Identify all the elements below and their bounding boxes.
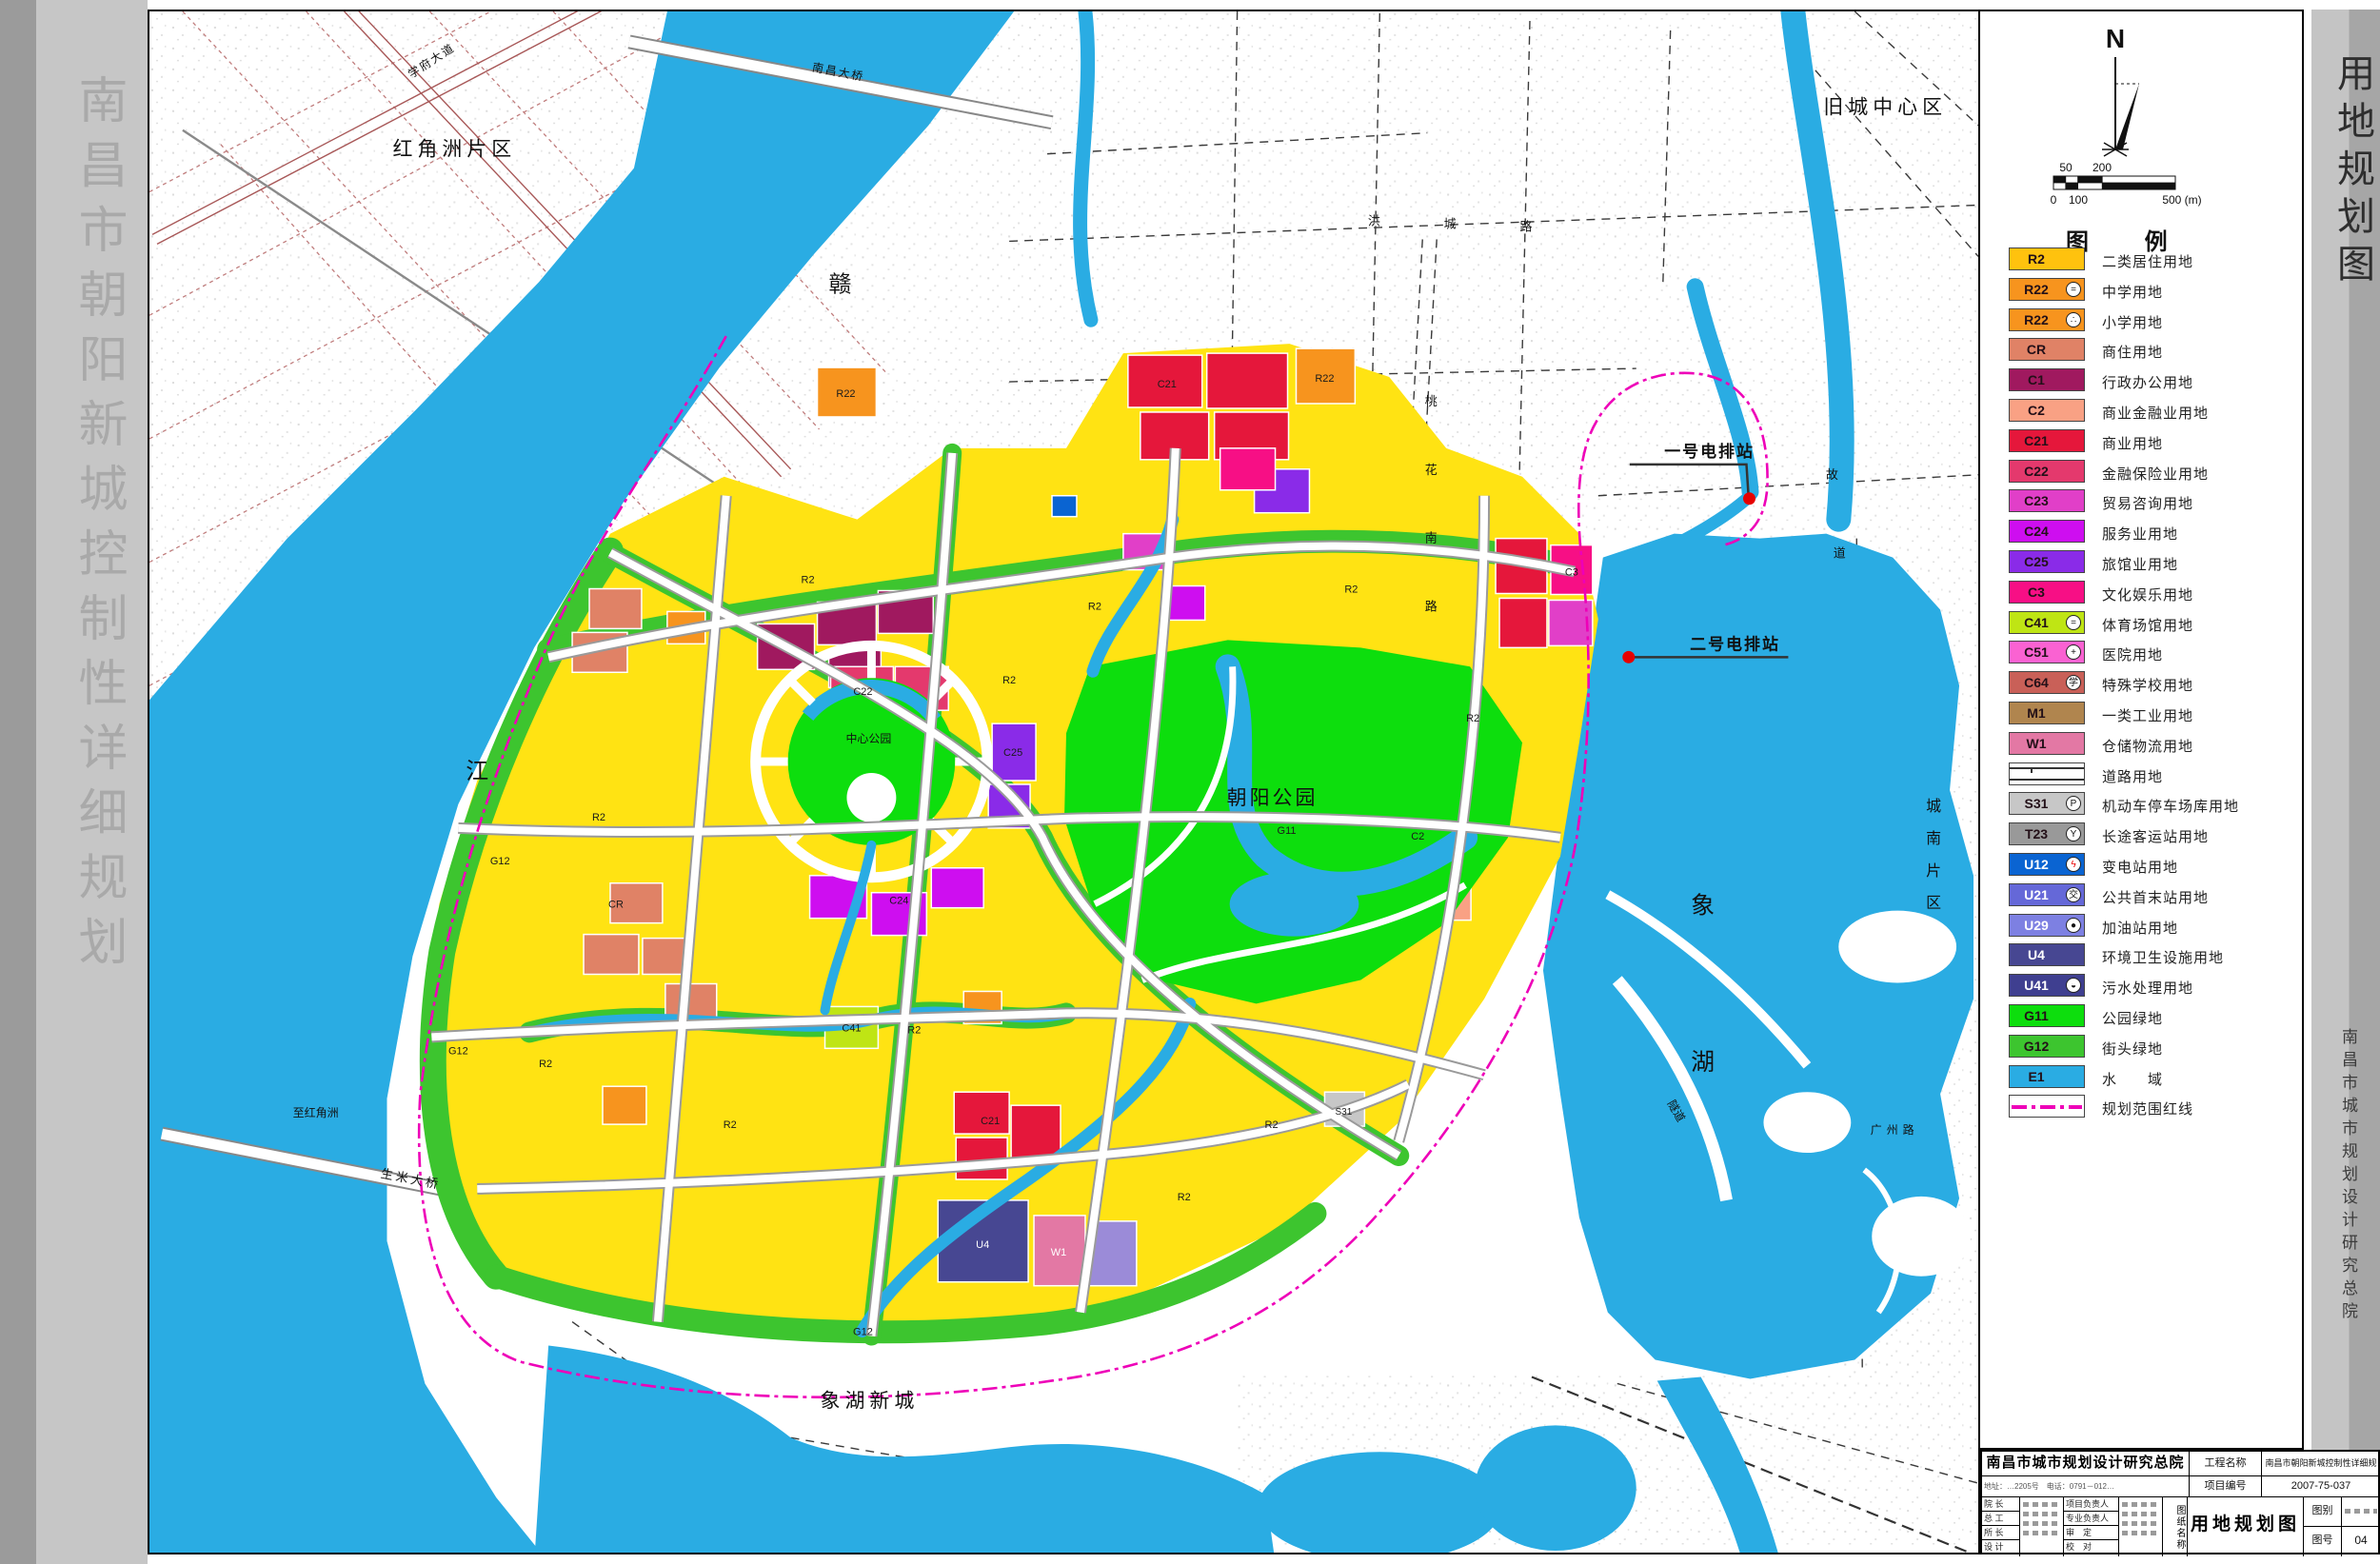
map-canvas: 红角洲片区 旧城中心区 象湖新城 朝阳公园 中心公园 赣 江 象 湖 城 南 片… — [148, 10, 1980, 1554]
legend-code: C1 — [2010, 372, 2063, 387]
role-label: 校 对 — [2064, 1540, 2118, 1554]
label-gan: 赣 — [829, 271, 852, 297]
parcel-code: G12 — [490, 856, 510, 867]
C51-swatch: C51+ — [2009, 641, 2085, 663]
planning-map-sheet: 南昌市朝阳新城控制性详细规划 — [0, 0, 2380, 1564]
land-use-map: 红角洲片区 旧城中心区 象湖新城 朝阳公园 中心公园 赣 江 象 湖 城 南 片… — [149, 11, 1978, 1553]
project-name-value: 南昌市朝阳新城控制性详细规划 — [2262, 1452, 2380, 1476]
legend-label: 商业金融业用地 — [2102, 403, 2209, 423]
legend-item-C64: C64学特殊学校用地 — [1980, 671, 2302, 696]
legend-code: C21 — [2010, 433, 2063, 448]
parcel-code: R2 — [1178, 1192, 1191, 1203]
legend-label: 水 域 — [2102, 1069, 2163, 1089]
role-label: 设 计 — [1982, 1540, 2019, 1554]
R22-swatch: R22∴ — [2009, 308, 2085, 331]
legend-code: E1 — [2010, 1069, 2063, 1084]
roles-column-2: 项目负责人 专业负责人 审 定 校 对 — [2064, 1497, 2119, 1556]
pump1-dot — [1743, 492, 1755, 505]
legend-code: C22 — [2010, 464, 2063, 479]
sheet-number-label: 图号 — [2304, 1527, 2342, 1556]
C23-swatch: C23 — [2009, 489, 2085, 512]
parcel-code: G12 — [448, 1045, 468, 1057]
parcel-code: R2 — [724, 1119, 737, 1131]
legend-code: C3 — [2010, 584, 2063, 600]
xiang-lake — [1543, 534, 1973, 1379]
parcel-code: R2 — [1265, 1119, 1279, 1131]
parcel-code: C22 — [853, 686, 872, 698]
parcel-code: G11 — [1278, 825, 1297, 837]
legend-label: 规划范围红线 — [2102, 1099, 2193, 1119]
project-name-label: 工程名称 — [2190, 1452, 2262, 1476]
legend-code: CR — [2010, 342, 2063, 357]
C22-swatch: C22 — [2009, 460, 2085, 483]
legend-symbol-icon: + — [2066, 644, 2081, 660]
legend-label: 一类工业用地 — [2102, 705, 2193, 725]
legend-label: 特殊学校用地 — [2102, 675, 2193, 695]
legend-label: 机动车停车场库用地 — [2102, 796, 2239, 816]
U4-swatch: U4 — [2009, 943, 2085, 966]
label-zhi-hongjiaozhou: 至红角洲 — [293, 1105, 339, 1119]
legend-label: 道路用地 — [2102, 766, 2163, 786]
legend-label: 加油站用地 — [2102, 918, 2178, 938]
legend-symbol-icon: 学 — [2066, 675, 2081, 690]
scale-bar: 50 200 0 100 500 (m) — [2051, 161, 2202, 207]
legend-label: 商住用地 — [2102, 342, 2163, 362]
names-column-1 — [2020, 1497, 2064, 1556]
parcel-code: R2 — [802, 575, 815, 586]
pump2-dot — [1622, 651, 1635, 663]
label-taohua-3: 南 — [1425, 531, 1438, 545]
parcel-code: R2 — [1088, 601, 1101, 612]
C2-swatch: C2 — [2009, 399, 2085, 422]
parcel-code: R2 — [539, 1059, 552, 1070]
legend-label: 服务业用地 — [2102, 524, 2178, 544]
legend-item-C21: C21商业用地 — [1980, 429, 2302, 454]
legend-item-boundary: 规划范围红线 — [1980, 1095, 2302, 1119]
parcel-code: CR — [608, 900, 624, 911]
role-label: 所 长 — [1982, 1526, 2019, 1540]
legend-code: C64 — [2010, 675, 2063, 690]
parcel-code: C25 — [1003, 747, 1022, 759]
C24-swatch: C24 — [2009, 520, 2085, 543]
C3-swatch: C3 — [2009, 581, 2085, 604]
parcel-code: U4 — [976, 1239, 989, 1251]
legend-code: R2 — [2010, 251, 2063, 267]
S31-swatch: S31P — [2009, 792, 2085, 815]
legend-code: W1 — [2010, 736, 2063, 751]
C25-swatch: C25 — [2009, 550, 2085, 573]
legend-item-C41: C41=体育场馆用地 — [1980, 611, 2302, 636]
legend-item-C22: C22金融保险业用地 — [1980, 460, 2302, 485]
label-hongcheng-1: 洪 — [1368, 213, 1380, 228]
legend-label: 变电站用地 — [2102, 857, 2178, 877]
legend-item-CR: CR商住用地 — [1980, 338, 2302, 363]
plan-title-vertical: 南昌市朝阳新城控制性详细规划 — [63, 74, 134, 980]
label-guangzhou-road: 广州路 — [1871, 1122, 1919, 1137]
parcel-code: C21 — [981, 1116, 1000, 1127]
legend-symbol-icon: ◒ — [2066, 978, 2081, 993]
sheet-type-label: 图别 — [2304, 1497, 2342, 1527]
legend-item-U12: U12ϟ变电站用地 — [1980, 853, 2302, 878]
parcel-code: R2 — [907, 1024, 921, 1036]
legend-label: 污水处理用地 — [2102, 978, 2193, 998]
legend-code: R22 — [2010, 282, 2063, 297]
road-swatch — [2009, 762, 2085, 785]
project-number-value: 2007-75-037 — [2262, 1476, 2380, 1497]
legend-item-S31: S31P机动车停车场库用地 — [1980, 792, 2302, 817]
sheet-number-value: 04 — [2342, 1527, 2380, 1556]
legend-label: 长途客运站用地 — [2102, 826, 2209, 846]
R22-swatch: R22= — [2009, 278, 2085, 301]
U29-swatch: U29● — [2009, 914, 2085, 937]
legend-code: C51 — [2010, 644, 2063, 660]
legend-label: 公园绿地 — [2102, 1008, 2163, 1028]
legend-item-C3: C3文化娱乐用地 — [1980, 581, 2302, 605]
legend-label: 旅馆业用地 — [2102, 554, 2178, 574]
CR-swatch: CR — [2009, 338, 2085, 361]
label-chengnan-3: 片 — [1926, 862, 1941, 880]
legend-code: R22 — [2010, 312, 2063, 327]
parcel-code: W1 — [1051, 1247, 1066, 1258]
legend-label: 行政办公用地 — [2102, 372, 2193, 392]
scale-tick-200: 200 — [2092, 161, 2112, 174]
parcel-code: R2 — [1466, 713, 1479, 724]
label-xiang: 象 — [1691, 893, 1715, 920]
label-taohua-1: 桃 — [1425, 394, 1438, 408]
legend-label: 贸易咨询用地 — [2102, 493, 2193, 513]
legend-item-G11: G11公园绿地 — [1980, 1004, 2302, 1029]
E1-swatch: E1 — [2009, 1065, 2085, 1088]
W1-swatch: W1 — [2009, 732, 2085, 755]
legend-item-C2: C2商业金融业用地 — [1980, 399, 2302, 424]
G12-swatch: G12 — [2009, 1035, 2085, 1058]
legend-label: 中学用地 — [2102, 282, 2163, 302]
names-column-2 — [2119, 1497, 2163, 1556]
right-title-strip: 用地规划图 南昌市城市规划设计研究总院 — [2311, 10, 2380, 1450]
drawing-name-label: 图纸名称 — [2163, 1497, 2188, 1556]
legend-item-R22: R22∴小学用地 — [1980, 308, 2302, 333]
north-arrow-and-scale: N 50 200 0 100 — [1980, 11, 2304, 221]
T23-swatch: T23Y — [2009, 822, 2085, 845]
parcel-code: S31 — [1336, 1107, 1353, 1118]
legend-item-C24: C24服务业用地 — [1980, 520, 2302, 544]
role-label: 专业负责人 — [2064, 1512, 2118, 1526]
label-jiucheng: 旧城中心区 — [1823, 97, 1947, 119]
legend-code: U21 — [2010, 887, 2063, 902]
C41-swatch: C41= — [2009, 611, 2085, 634]
drawing-title-vertical: 用地规划图 — [2325, 53, 2380, 291]
label-hu: 湖 — [1691, 1049, 1715, 1076]
label-jiang: 江 — [466, 759, 488, 784]
legend-item-road: 道路用地 — [1980, 762, 2302, 787]
label-pump1: 一号电排站 — [1664, 442, 1755, 461]
legend-code: C2 — [2010, 403, 2063, 418]
title-block: 南昌市城市规划设计研究总院 工程名称 南昌市朝阳新城控制性详细规划 地址：…22… — [1980, 1450, 2380, 1554]
role-label: 审 定 — [2064, 1526, 2118, 1540]
label-chengnan-1: 城 — [1926, 798, 1941, 815]
parcel-code: R2 — [1002, 675, 1016, 686]
left-sidebar: 南昌市朝阳新城控制性详细规划 — [36, 0, 148, 1564]
scale-tick-0: 0 — [2051, 193, 2057, 207]
legend-item-C1: C1行政办公用地 — [1980, 368, 2302, 393]
boundary-swatch — [2009, 1095, 2085, 1118]
legend-code: U12 — [2010, 857, 2063, 872]
scale-tick-100: 100 — [2069, 193, 2088, 207]
legend-label: 环境卫生设施用地 — [2102, 947, 2224, 967]
label-gudao-1: 故 — [1826, 467, 1838, 482]
role-label: 院 长 — [1982, 1497, 2019, 1512]
legend-label: 二类居住用地 — [2102, 251, 2193, 271]
parcel-code: G12 — [853, 1327, 873, 1338]
drawing-name-value: 用地规划图 — [2188, 1497, 2304, 1556]
legend-item-U21: U21交公共首末站用地 — [1980, 883, 2302, 908]
M1-swatch: M1 — [2009, 702, 2085, 724]
institute-vertical: 南昌市城市规划设计研究总院 — [2336, 1028, 2360, 1325]
parcel-code: C3 — [1565, 567, 1578, 579]
legend-symbol-icon: 交 — [2066, 887, 2081, 902]
legend-code: C23 — [2010, 493, 2063, 508]
role-label: 总 工 — [1982, 1512, 2019, 1526]
legend-symbol-icon: = — [2066, 282, 2081, 297]
legend-symbol-icon: Y — [2066, 826, 2081, 841]
legend-label: 公共首末站用地 — [2102, 887, 2209, 907]
address-line: 地址：…2205号 电话：0791－012… — [1982, 1476, 2190, 1497]
label-chaoyang-park: 朝阳公园 — [1227, 787, 1319, 809]
scale-tick-500: 500 (m) — [2162, 193, 2201, 207]
legend-code: C41 — [2010, 615, 2063, 630]
label-hongjiaozhou: 红角洲片区 — [393, 139, 517, 161]
legend-code: S31 — [2010, 796, 2063, 811]
legend-item-U41: U41◒污水处理用地 — [1980, 974, 2302, 999]
legend-item-R2: R2二类居住用地 — [1980, 247, 2302, 272]
legend-label: 仓储物流用地 — [2102, 736, 2193, 756]
label-pump2: 二号电排站 — [1690, 634, 1780, 653]
legend-label: 文化娱乐用地 — [2102, 584, 2193, 604]
legend-item-U4: U4环境卫生设施用地 — [1980, 943, 2302, 968]
legend-label: 金融保险业用地 — [2102, 464, 2209, 484]
legend-label: 医院用地 — [2102, 644, 2163, 664]
label-chengnan-4: 区 — [1926, 896, 1941, 912]
legend-code: C24 — [2010, 524, 2063, 539]
legend-code: U41 — [2010, 978, 2063, 993]
legend-item-E1: E1水 域 — [1980, 1065, 2302, 1090]
compass-needle — [2115, 84, 2139, 149]
role-label: 项目负责人 — [2064, 1497, 2118, 1512]
legend-item-U29: U29●加油站用地 — [1980, 914, 2302, 939]
roles-column-1: 院 长 总 工 所 长 设 计 — [1982, 1497, 2020, 1556]
legend-item-M1: M1一类工业用地 — [1980, 702, 2302, 726]
U12-swatch: U12ϟ — [2009, 853, 2085, 876]
legend-symbol-icon: ϟ — [2066, 857, 2081, 872]
legend-code: T23 — [2010, 826, 2063, 841]
legend-item-W1: W1仓储物流用地 — [1980, 732, 2302, 757]
legend-label: 小学用地 — [2102, 312, 2163, 332]
legend-item-R22: R22=中学用地 — [1980, 278, 2302, 303]
parcel-code: R2 — [1344, 584, 1358, 595]
legend-label: 街头绿地 — [2102, 1039, 2163, 1059]
parcel-code: C41 — [842, 1022, 861, 1034]
label-chengnan-2: 南 — [1926, 830, 1941, 847]
legend-code: G11 — [2010, 1008, 2063, 1023]
C21-swatch: C21 — [2009, 429, 2085, 452]
label-hongcheng-2: 城 — [1444, 216, 1457, 230]
project-number-label: 项目编号 — [2190, 1476, 2262, 1497]
G11-swatch: G11 — [2009, 1004, 2085, 1027]
legend-symbol-icon: = — [2066, 615, 2081, 630]
legend-item-C51: C51+医院用地 — [1980, 641, 2302, 665]
legend-symbol-icon: ∴ — [2066, 312, 2081, 327]
legend-item-C23: C23贸易咨询用地 — [1980, 489, 2302, 514]
parcel-code: C21 — [1158, 379, 1177, 390]
C64-swatch: C64学 — [2009, 671, 2085, 694]
C1-swatch: C1 — [2009, 368, 2085, 391]
north-letter: N — [2106, 24, 2125, 53]
parcel-code: R2 — [592, 812, 605, 823]
parcel-code: R22 — [836, 388, 855, 400]
label-taohua-2: 花 — [1425, 463, 1438, 477]
R2-swatch: R2 — [2009, 247, 2085, 270]
page-left-edge — [0, 0, 36, 1564]
label-xianghu-xincheng: 象湖新城 — [821, 1390, 920, 1412]
label-hongcheng-3: 路 — [1519, 219, 1532, 233]
legend-code: M1 — [2010, 705, 2063, 721]
scale-tick-50: 50 — [2059, 161, 2073, 174]
legend-item-T23: T23Y长途客运站用地 — [1980, 822, 2302, 847]
legend-item-G12: G12街头绿地 — [1980, 1035, 2302, 1059]
parcel-code: C24 — [889, 896, 908, 907]
institute-name: 南昌市城市规划设计研究总院 — [1982, 1452, 2190, 1476]
legend-panel: N 50 200 0 100 — [1980, 10, 2304, 1450]
legend-code: U29 — [2010, 918, 2063, 933]
parcel-code: C2 — [1411, 831, 1424, 842]
legend-symbol-icon: ● — [2066, 918, 2081, 933]
legend-code: C25 — [2010, 554, 2063, 569]
label-zhongxin-park: 中心公园 — [845, 731, 891, 745]
U41-swatch: U41◒ — [2009, 974, 2085, 997]
U21-swatch: U21交 — [2009, 883, 2085, 906]
legend-item-C25: C25旅馆业用地 — [1980, 550, 2302, 575]
legend-symbol-icon: P — [2066, 796, 2081, 811]
legend-label: 体育场馆用地 — [2102, 615, 2193, 635]
legend-code: G12 — [2010, 1039, 2063, 1054]
parcel-code: R22 — [1315, 373, 1334, 385]
label-taohua-4: 路 — [1425, 599, 1438, 613]
label-gudao-2: 道 — [1834, 546, 1846, 561]
legend-code: U4 — [2010, 947, 2063, 962]
legend-label: 商业用地 — [2102, 433, 2163, 453]
sheet-type-value — [2342, 1497, 2380, 1527]
